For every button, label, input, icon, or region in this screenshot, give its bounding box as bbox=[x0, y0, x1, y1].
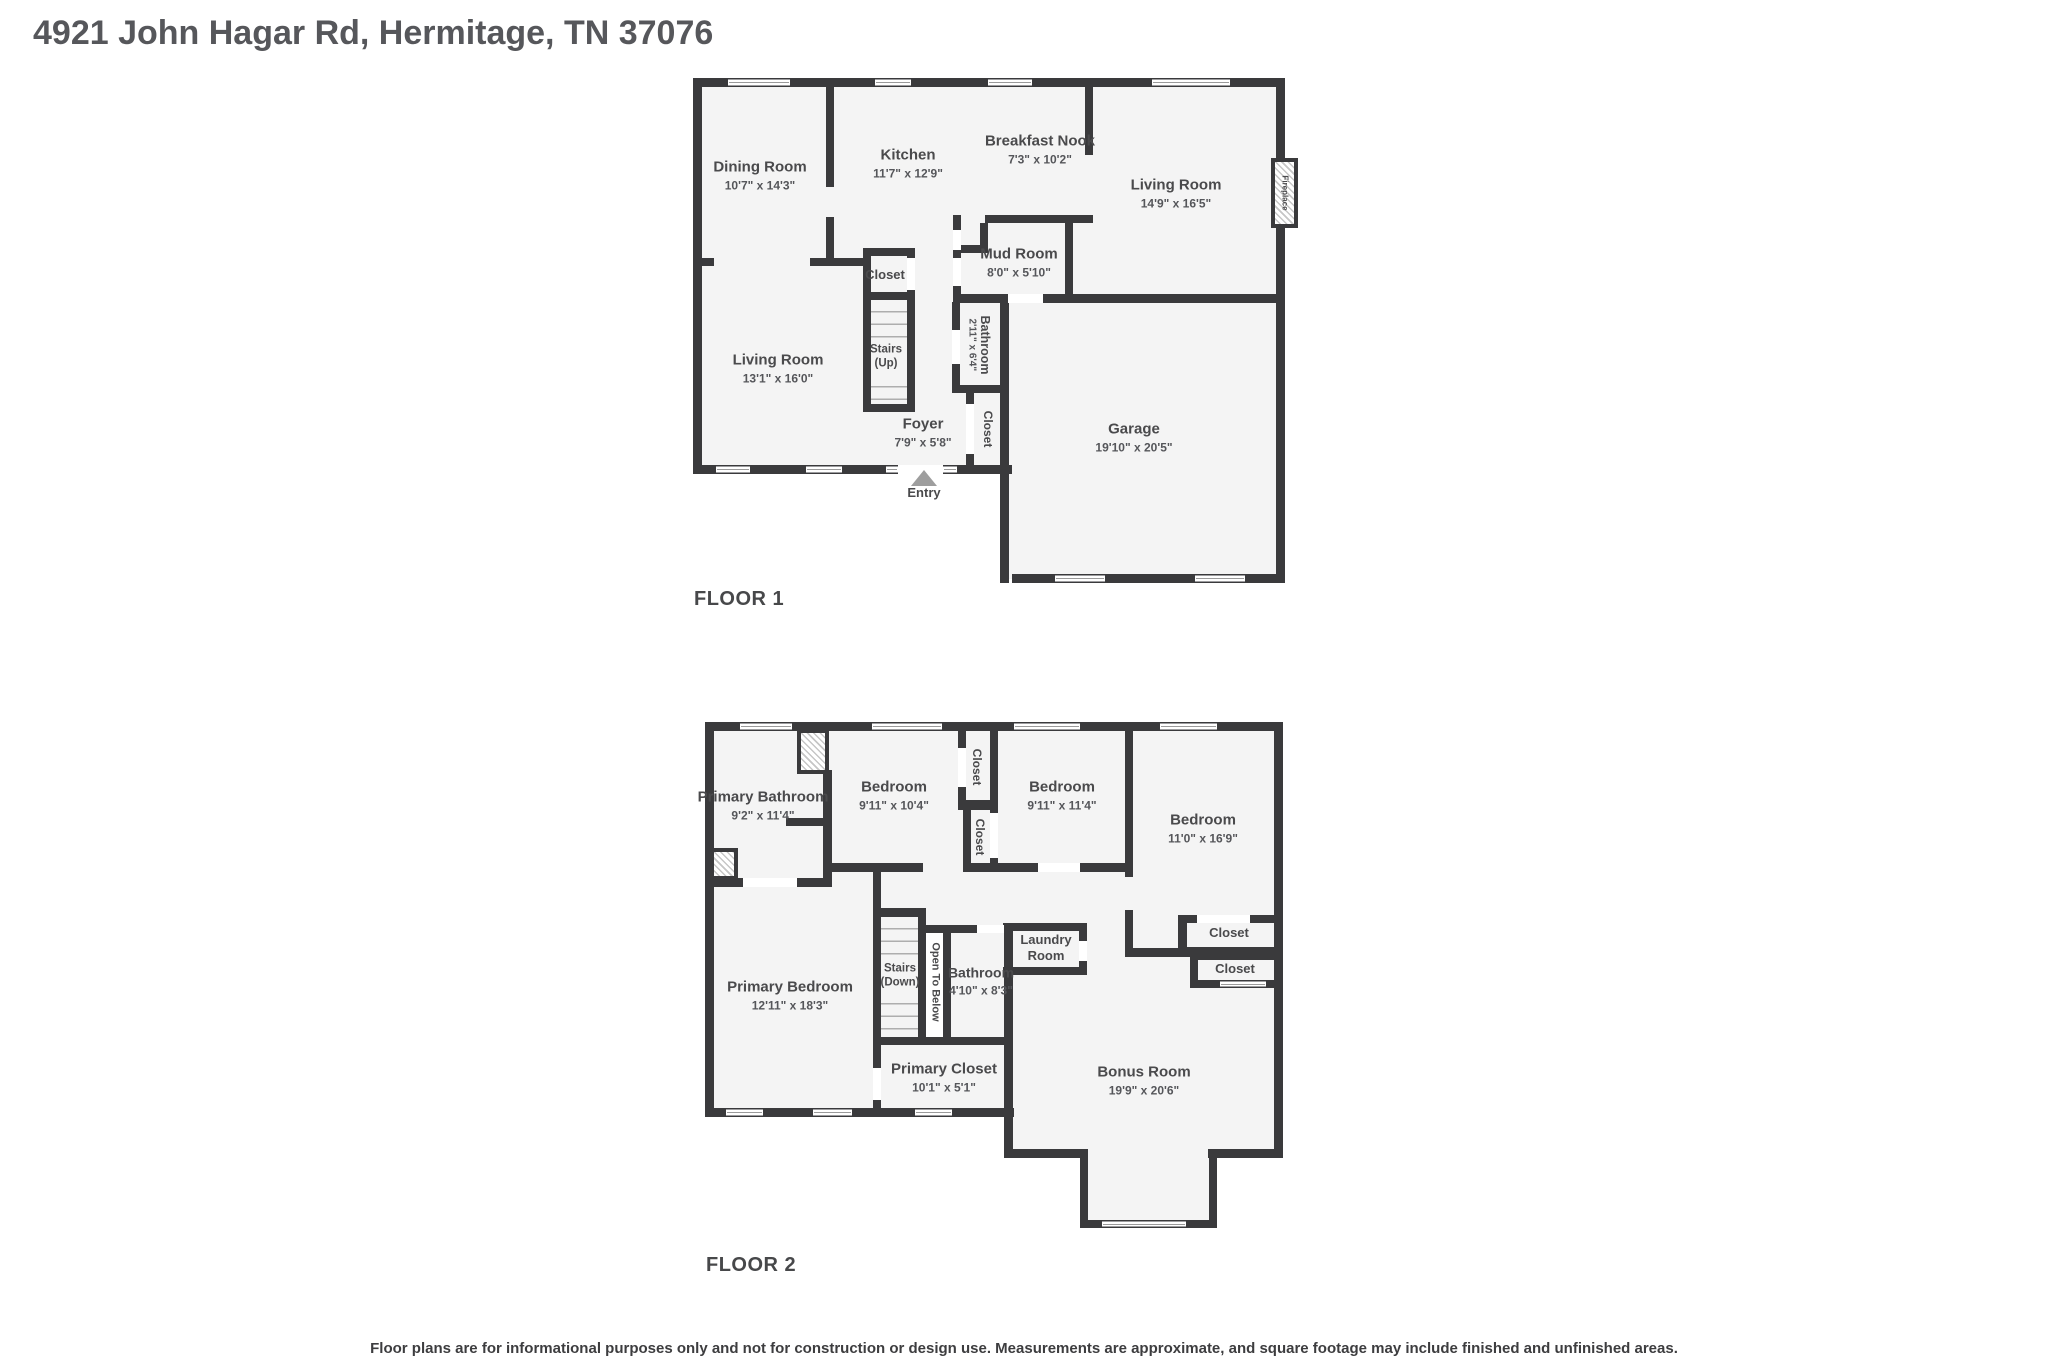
wall bbox=[702, 258, 714, 266]
room-dims: 7'9" x 5'8" bbox=[894, 435, 951, 450]
room-dims: 4'10" x 8'3" bbox=[948, 983, 1014, 998]
room-name: Bathroom bbox=[948, 964, 1014, 982]
disclaimer-text: Floor plans are for informational purpos… bbox=[0, 1340, 2048, 1357]
room-name: Bathroom bbox=[978, 315, 992, 374]
room-label-living-room-upper: Living Room 14'9" x 16'5" bbox=[1131, 177, 1222, 212]
room-name: Primary Closet bbox=[891, 1061, 997, 1080]
door-opening bbox=[953, 258, 961, 286]
room-name: Bedroom bbox=[1168, 812, 1238, 831]
room-label-closet-3: Closet bbox=[1209, 925, 1249, 941]
room-dims: 19'10" x 20'5" bbox=[1095, 440, 1172, 455]
wall bbox=[985, 215, 1093, 223]
wall bbox=[1208, 1149, 1283, 1158]
room-name: Living Room bbox=[733, 352, 824, 371]
room-name: Garage bbox=[1095, 421, 1172, 440]
window bbox=[1195, 574, 1245, 583]
wall bbox=[1274, 722, 1283, 1158]
room-label-mud-room: Mud Room 8'0" x 5'10" bbox=[980, 246, 1057, 281]
entry-arrow-icon bbox=[911, 470, 937, 486]
floor1-heading: FLOOR 1 bbox=[694, 588, 784, 611]
room-name: Closet bbox=[969, 749, 983, 786]
room-name: Mud Room bbox=[980, 246, 1057, 265]
room-name: Closet bbox=[865, 267, 905, 283]
wall bbox=[953, 294, 1276, 303]
door-opening bbox=[958, 748, 966, 787]
window bbox=[728, 78, 790, 87]
room-name: Closet bbox=[972, 819, 986, 856]
window bbox=[886, 465, 898, 474]
room-label-breakfast-nook: Breakfast Nook 7'3" x 10'2" bbox=[985, 133, 1095, 168]
window bbox=[1102, 1220, 1186, 1228]
room-name: Closet bbox=[1209, 925, 1249, 941]
entry-label: Entry bbox=[907, 485, 940, 501]
window bbox=[1014, 722, 1080, 731]
room-dims: 9'2" x 11'4" bbox=[698, 808, 829, 823]
room-name: Entry bbox=[907, 485, 940, 501]
wall bbox=[1003, 923, 1087, 931]
room-label-living-room-lower: Living Room 13'1" x 16'0" bbox=[733, 352, 824, 387]
fireplace-label: Fireplace bbox=[1281, 175, 1290, 210]
window bbox=[806, 465, 842, 474]
room-label-kitchen: Kitchen 11'7" x 12'9" bbox=[873, 147, 943, 182]
room-label-open-to-below: Open To Below bbox=[929, 942, 942, 1021]
room-dims: 9'11" x 10'4" bbox=[859, 798, 929, 813]
room-name: Kitchen bbox=[873, 147, 943, 166]
room-label-garage: Garage 19'10" x 20'5" bbox=[1095, 421, 1172, 456]
room-name: Laundry Room bbox=[1014, 932, 1078, 965]
wall bbox=[1000, 294, 1009, 583]
wall bbox=[826, 87, 834, 187]
room-dims: 10'7" x 14'3" bbox=[713, 178, 806, 193]
room-dims: 19'9" x 20'6" bbox=[1097, 1083, 1190, 1098]
room-name: Closet bbox=[980, 411, 994, 448]
wall bbox=[873, 863, 881, 1045]
room-dims: 9'11" x 11'4" bbox=[1027, 798, 1096, 813]
door-opening bbox=[743, 878, 797, 887]
room-name: Foyer bbox=[894, 416, 951, 435]
window bbox=[915, 1108, 952, 1117]
room-label-closet-4: Closet bbox=[1215, 961, 1255, 977]
room-dims: 11'7" x 12'9" bbox=[873, 166, 943, 181]
wall bbox=[810, 258, 868, 266]
wall bbox=[1209, 1149, 1217, 1228]
room-name: Bedroom bbox=[1027, 779, 1096, 798]
window bbox=[716, 465, 750, 474]
floor-area bbox=[1084, 1150, 1213, 1224]
floor2-heading: FLOOR 2 bbox=[706, 1254, 796, 1277]
room-name: Closet bbox=[1215, 961, 1255, 977]
room-label-primary-bathroom: Primary Bathroom 9'2" x 11'4" bbox=[698, 789, 829, 824]
shower-hatch bbox=[797, 729, 829, 774]
room-name: Living Room bbox=[1131, 177, 1222, 196]
wall bbox=[1276, 78, 1285, 583]
door-opening bbox=[1008, 294, 1043, 303]
room-label-bedroom-1: Bedroom 9'11" x 10'4" bbox=[859, 779, 929, 814]
room-label-bedroom-2: Bedroom 9'11" x 11'4" bbox=[1027, 779, 1096, 814]
room-label-closet-2: Closet bbox=[972, 819, 986, 856]
room-label-primary-closet: Primary Closet 10'1" x 5'1" bbox=[891, 1061, 997, 1096]
room-name: Bedroom bbox=[859, 779, 929, 798]
wall bbox=[863, 292, 915, 300]
room-label-dining: Dining Room 10'7" x 14'3" bbox=[713, 159, 806, 194]
room-name: Dining Room bbox=[713, 159, 806, 178]
room-dims: 11'0" x 16'9" bbox=[1168, 831, 1238, 846]
room-dims: 12'11" x 18'3" bbox=[727, 998, 853, 1013]
door-opening bbox=[966, 404, 974, 454]
room-dims: 10'1" x 5'1" bbox=[891, 1080, 997, 1095]
window bbox=[1055, 574, 1105, 583]
room-name: Breakfast Nook bbox=[985, 133, 1095, 152]
room-label-stairs-down: Stairs (Down) bbox=[876, 962, 924, 991]
door-opening bbox=[1038, 863, 1080, 872]
wall bbox=[963, 863, 998, 872]
wall bbox=[863, 404, 915, 412]
window bbox=[1160, 722, 1217, 731]
room-label-laundry-room: Laundry Room bbox=[1014, 932, 1078, 965]
room-dims: 13'1" x 16'0" bbox=[733, 371, 824, 386]
window bbox=[988, 78, 1032, 87]
room-label-foyer: Foyer 7'9" x 5'8" bbox=[894, 416, 951, 451]
wall bbox=[1003, 967, 1087, 975]
window bbox=[943, 465, 957, 474]
wall bbox=[873, 1037, 1013, 1045]
wall bbox=[1125, 722, 1133, 877]
door-opening bbox=[907, 258, 915, 290]
room-label-stairs-up: Stairs (Up) bbox=[863, 343, 909, 372]
door-opening bbox=[873, 1068, 881, 1100]
door-opening bbox=[1197, 915, 1250, 923]
door-opening bbox=[953, 230, 961, 250]
wall bbox=[830, 863, 923, 872]
wall bbox=[705, 722, 714, 1117]
room-label-bathroom2: Bathroom 4'10" x 8'3" bbox=[948, 964, 1014, 998]
page-title: 4921 John Hagar Rd, Hermitage, TN 37076 bbox=[33, 14, 713, 53]
room-label-bonus-room: Bonus Room 19'9" x 20'6" bbox=[1097, 1064, 1190, 1099]
room-dims: 2'11" x 6'4" bbox=[966, 315, 978, 374]
room-name: Bonus Room bbox=[1097, 1064, 1190, 1083]
wall bbox=[1080, 1149, 1088, 1228]
door-opening bbox=[977, 925, 1004, 933]
window bbox=[875, 78, 911, 87]
room-name: Open To Below bbox=[929, 942, 942, 1021]
room-label-bedroom-3: Bedroom 11'0" x 16'9" bbox=[1168, 812, 1238, 847]
room-label-closet-1: Closet bbox=[969, 749, 983, 786]
window bbox=[872, 722, 942, 731]
room-name: Primary Bedroom bbox=[727, 979, 853, 998]
shower-hatch bbox=[710, 848, 738, 880]
floor-area bbox=[1009, 1100, 1279, 1154]
wall bbox=[958, 800, 998, 810]
wall bbox=[952, 385, 1009, 393]
window bbox=[726, 1108, 763, 1117]
window bbox=[813, 1108, 852, 1117]
wall bbox=[1004, 1149, 1088, 1158]
door-opening bbox=[1079, 941, 1087, 961]
wall bbox=[693, 78, 702, 474]
room-label-primary-bedroom: Primary Bedroom 12'11" x 18'3" bbox=[727, 979, 853, 1014]
room-dims: 7'3" x 10'2" bbox=[985, 152, 1095, 167]
room-label-foyer-closet: Closet bbox=[980, 411, 994, 448]
wall bbox=[1190, 952, 1277, 960]
window bbox=[740, 722, 792, 731]
window bbox=[1220, 980, 1266, 988]
wall bbox=[1065, 215, 1073, 303]
door-opening bbox=[990, 813, 998, 858]
room-dims: 14'9" x 16'5" bbox=[1131, 196, 1222, 211]
door-opening bbox=[952, 330, 960, 364]
room-name: Stairs (Up) bbox=[863, 343, 909, 372]
room-name: Stairs (Down) bbox=[876, 962, 924, 991]
room-label-bathroom: Bathroom 2'11" x 6'4" bbox=[966, 315, 992, 374]
room-dims: 8'0" x 5'10" bbox=[980, 265, 1057, 280]
room-name: Primary Bathroom bbox=[698, 789, 829, 808]
wall bbox=[873, 908, 926, 917]
window bbox=[1152, 78, 1230, 87]
room-label-stair-closet: Closet bbox=[865, 267, 905, 283]
floor-plan-page: 4921 John Hagar Rd, Hermitage, TN 37076 bbox=[0, 0, 2048, 1365]
